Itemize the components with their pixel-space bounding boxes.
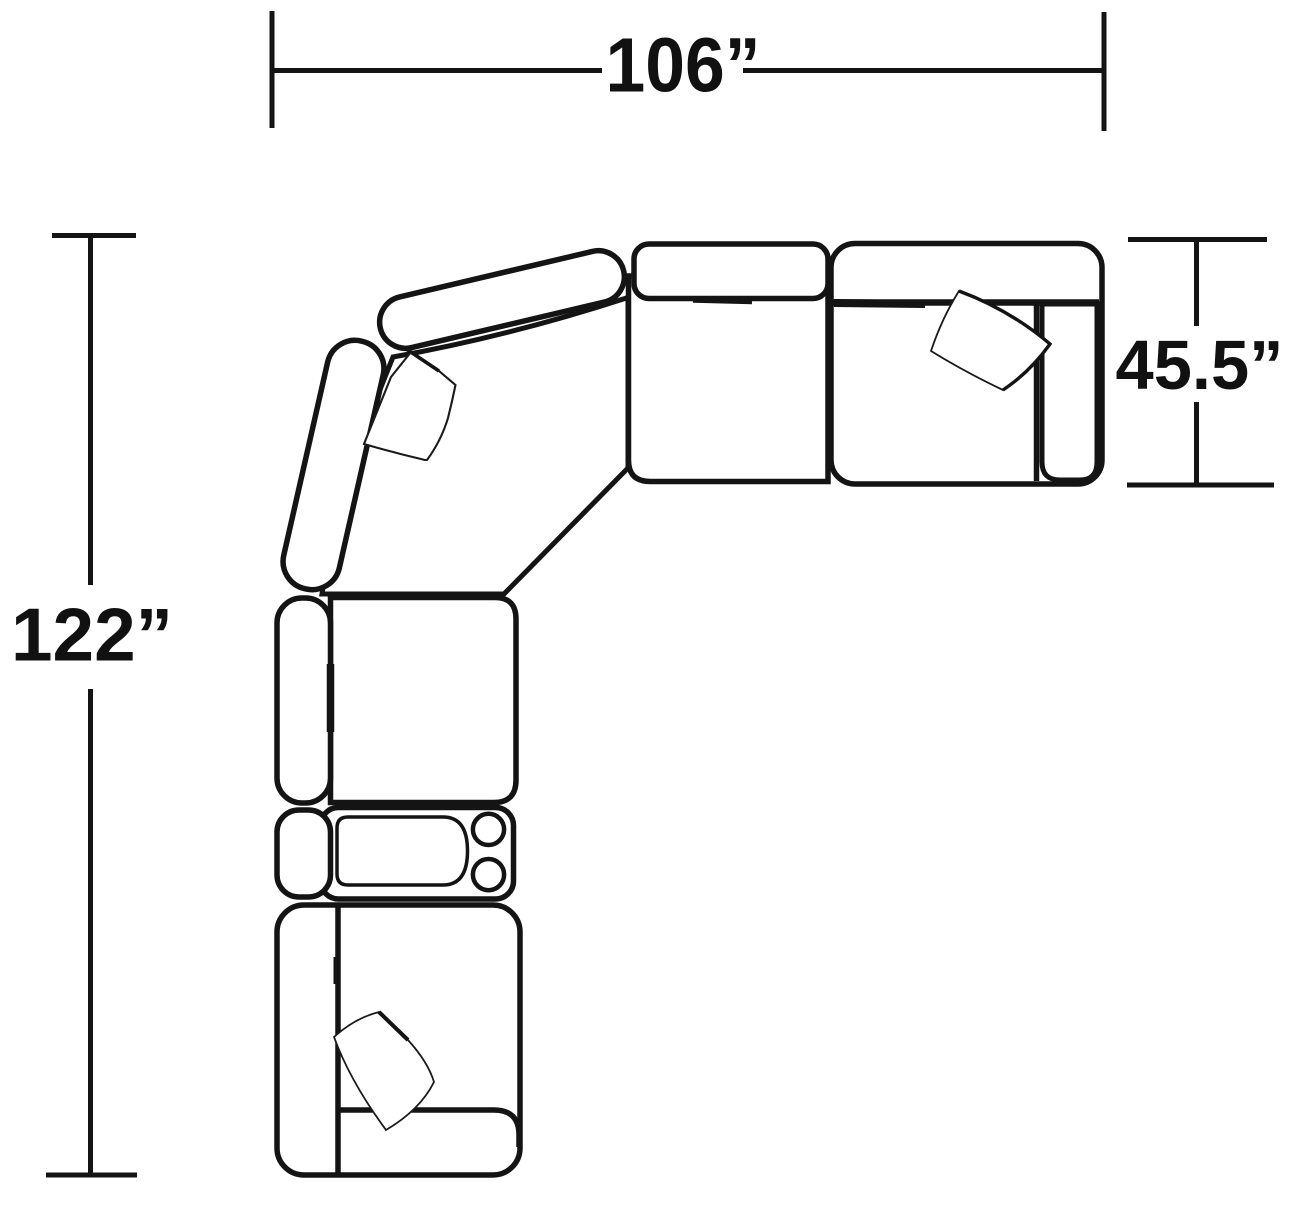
svg-text:122”: 122” [11,593,173,677]
svg-text:106”: 106” [606,23,761,109]
svg-text:45.5”: 45.5” [1116,326,1284,404]
